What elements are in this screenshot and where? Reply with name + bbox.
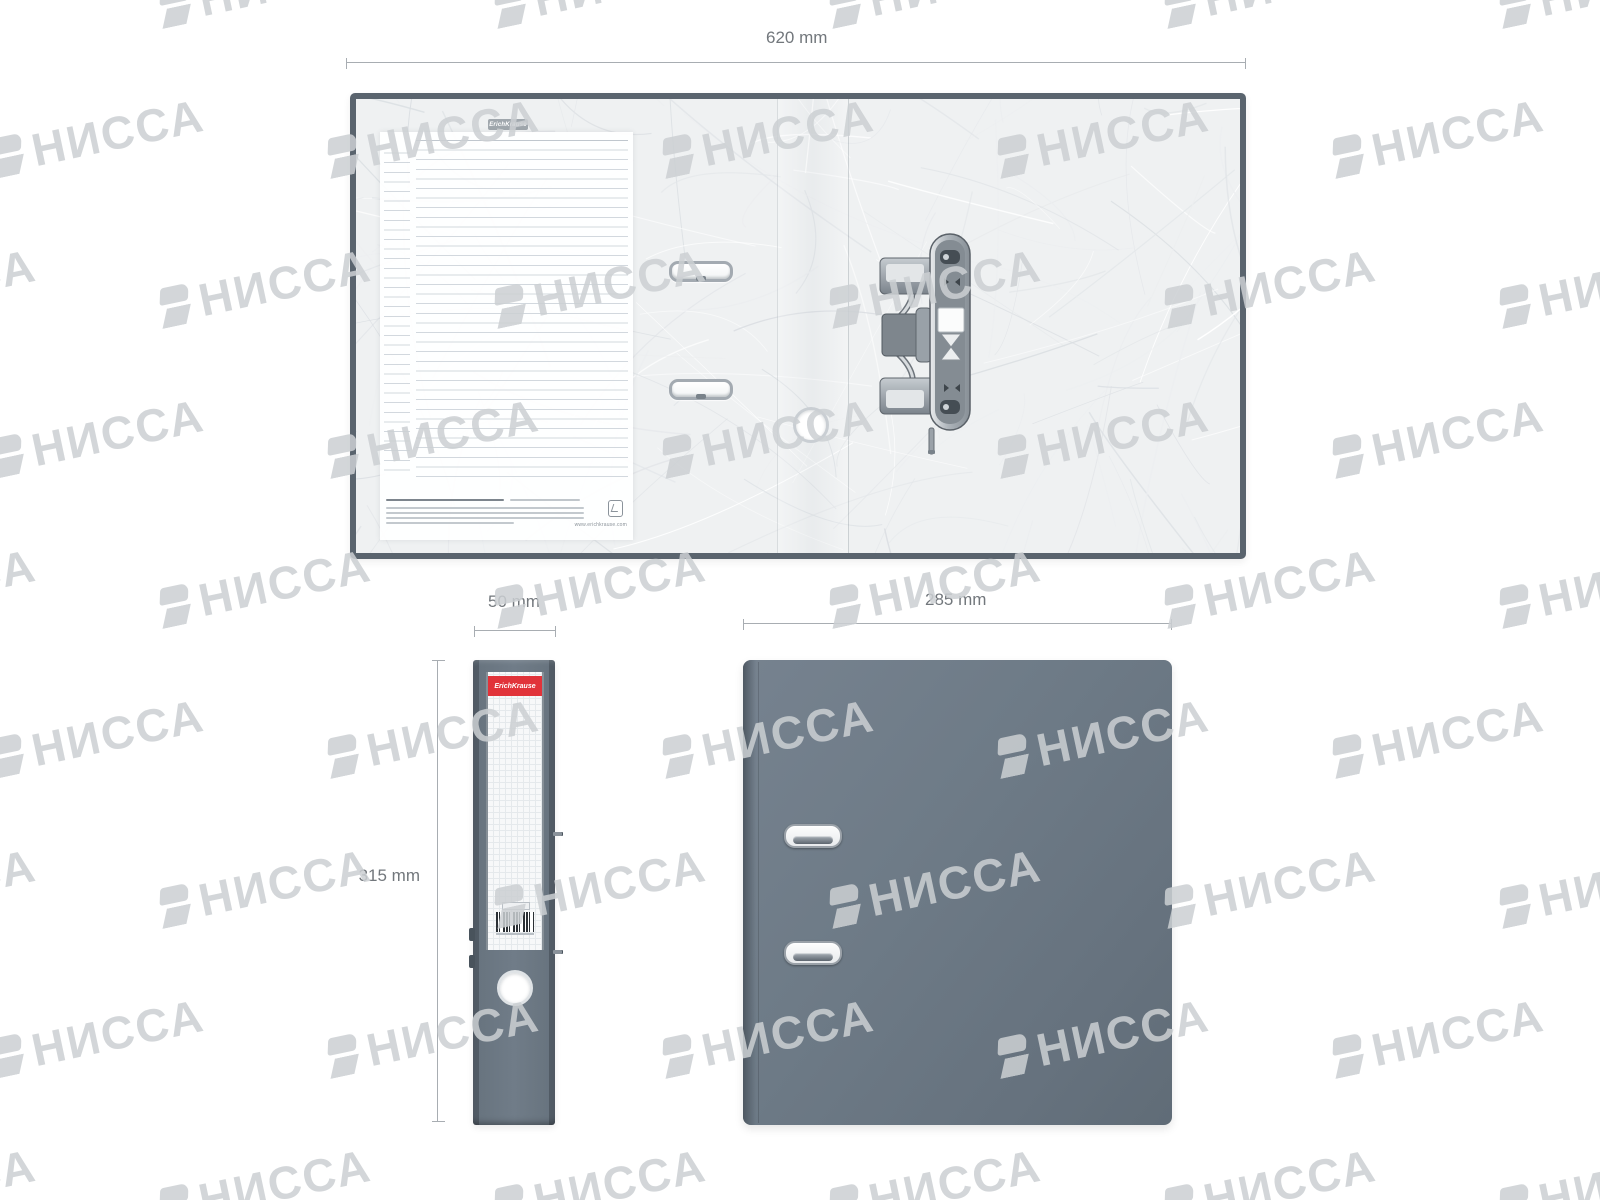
watermark: НИССА [152,0,376,36]
dimension-tick [555,626,556,637]
watermark: НИССА [0,1138,41,1200]
watermark-text: НИССА [529,1138,711,1200]
watermark-text: НИССА [864,0,1046,27]
watermark-text: НИССА [529,0,711,27]
rivet-pin [553,832,562,836]
watermark: НИССА [0,0,41,36]
barcode-digits [496,933,534,935]
watermark: НИССА [0,238,41,336]
dimension-tick [1245,58,1246,69]
open-binder-view: ErichKrause www.erichkrause.com [350,93,1246,559]
watermark-text: НИССА [864,1138,1046,1200]
watermark-text: НИССА [1367,88,1549,177]
front-width-dimension-line [743,623,1172,624]
fine-print-line [510,499,580,501]
watermark: НИССА [152,1138,376,1200]
spine-label-brand: ErichKrause [488,676,542,696]
lever-arch-mechanism [872,232,978,458]
nissa-logo-icon [321,1032,365,1081]
watermark-text: НИССА [0,838,41,927]
watermark: НИССА [1325,988,1549,1086]
watermark-text: НИССА [1367,988,1549,1077]
watermark-text: НИССА [0,1138,41,1200]
fine-print-line [386,507,584,509]
watermark: НИССА [1492,538,1600,636]
nissa-logo-icon [153,882,197,931]
ring-metal [793,836,833,844]
spine-width-dimension-line [474,630,556,631]
spine-label: ErichKrause [486,672,544,950]
watermark: НИССА [487,0,711,36]
nissa-logo-icon [153,282,197,331]
watermark-text: НИССА [1534,1138,1600,1200]
watermark-text: НИССА [194,0,376,27]
dimension-tick [743,619,744,630]
nissa-logo-icon [321,732,365,781]
watermark-text: НИССА [0,0,41,27]
watermark: НИССА [1492,838,1600,936]
watermark-text: НИССА [0,238,41,327]
rivet-pin [553,950,562,954]
watermark: НИССА [152,538,376,636]
nissa-logo-icon [1158,1182,1202,1200]
spine-band [777,99,848,553]
fine-print-line [386,512,584,514]
barcode [496,912,534,932]
ring-metal [793,953,833,961]
watermark-text: НИССА [1367,388,1549,477]
watermark: НИССА [1492,238,1600,336]
watermark-text: НИССА [27,88,209,177]
open-width-dimension-label: 620 mm [766,28,827,48]
nissa-logo-icon [1493,582,1537,631]
paper-fine-print: www.erichkrause.com [386,498,627,536]
nissa-logo-icon [1493,1182,1537,1200]
grommet-eyelet [784,941,842,965]
grommet-eyelet [669,379,733,400]
nissa-logo-icon [0,1032,30,1081]
brand-tag: ErichKrause [488,119,528,130]
watermark: НИССА [1157,0,1381,36]
watermark-text: НИССА [27,988,209,1077]
spine-view: ErichKrause [473,660,555,1125]
spine-finger-hole [497,970,533,1006]
watermark: НИССА [1492,0,1600,36]
front-cover-view [743,660,1172,1125]
watermark: НИССА [0,388,209,486]
watermark-text: НИССА [0,538,41,627]
watermark-text: НИССА [194,538,376,627]
watermark-text: НИССА [1367,688,1549,777]
nissa-logo-icon [1326,1032,1370,1081]
spine-width-dimension-label: 50 mm [488,592,540,612]
height-dimension-label: 315 mm [352,866,420,886]
grommet-eyelet [784,824,842,848]
watermark: НИССА [1157,838,1381,936]
fine-print-line [386,522,514,524]
nissa-logo-icon [656,732,700,781]
watermark-text: НИССА [529,838,711,927]
nissa-logo-icon [1326,132,1370,181]
watermark-text: НИССА [1199,1138,1381,1200]
watermark: НИССА [1157,1138,1381,1200]
paper-footer-logo-icon [608,500,623,517]
watermark-text: НИССА [194,838,376,927]
watermark: НИССА [1325,688,1549,786]
watermark-text: НИССА [194,238,376,327]
watermark-text: НИССА [1534,838,1600,927]
watermark-text: НИССА [27,388,209,477]
watermark: НИССА [1325,88,1549,186]
nissa-logo-icon [488,0,532,30]
nissa-logo-icon [153,0,197,30]
nissa-logo-icon [1493,0,1537,30]
nissa-logo-icon [1493,882,1537,931]
watermark: НИССА [0,538,41,636]
nissa-logo-icon [1493,282,1537,331]
dimension-tick [474,626,475,637]
barcode-number-plate [502,902,530,910]
watermark: НИССА [0,988,209,1086]
nissa-logo-icon [656,1032,700,1081]
paper-margin-rules [384,144,410,476]
watermark: НИССА [822,0,1046,36]
nissa-logo-icon [823,0,867,30]
watermark: НИССА [152,838,376,936]
rivet-pin [469,928,475,941]
fine-print-line [386,499,504,501]
watermark: НИССА [0,838,41,936]
dimension-tick [346,58,347,69]
watermark: НИССА [1492,1138,1600,1200]
front-width-dimension-label: 285 mm [925,590,986,610]
height-dimension-line [437,660,438,1122]
nissa-logo-icon [0,132,30,181]
watermark: НИССА [0,88,209,186]
watermark-text: НИССА [27,688,209,777]
dimension-tick [432,660,445,661]
finger-hole [793,407,829,443]
watermark: НИССА [487,1138,711,1200]
dimension-tick [432,1121,445,1122]
watermark-text: НИССА [1534,538,1600,627]
paper-rules [416,140,628,479]
brand-website: www.erichkrause.com [575,522,627,528]
nissa-logo-icon [1326,432,1370,481]
product-dimension-diagram: 620 mm ErichKrause www.erichkrause.com [0,0,1600,1200]
nissa-logo-icon [823,1182,867,1200]
nissa-logo-icon [1326,732,1370,781]
dimension-tick [1171,619,1172,630]
watermark: НИССА [1325,388,1549,486]
nissa-logo-icon [153,582,197,631]
nissa-logo-icon [153,1182,197,1200]
grommet-eyelet [669,261,733,282]
nissa-logo-icon [0,732,30,781]
nissa-logo-icon [488,1182,532,1200]
watermark-text: НИССА [1534,0,1600,27]
lined-paper-insert: www.erichkrause.com [380,132,633,540]
watermark: НИССА [822,1138,1046,1200]
watermark-text: НИССА [1534,238,1600,327]
nissa-logo-icon [1158,0,1202,30]
open-width-dimension-line [346,62,1246,63]
watermark: НИССА [0,688,209,786]
watermark-text: НИССА [1199,0,1381,27]
spine-crease-line [848,99,849,553]
watermark-text: НИССА [194,1138,376,1200]
watermark: НИССА [152,238,376,336]
fine-print-line [386,517,584,519]
watermark-text: НИССА [1199,838,1381,927]
rivet-pin [469,955,475,968]
nissa-logo-icon [0,432,30,481]
